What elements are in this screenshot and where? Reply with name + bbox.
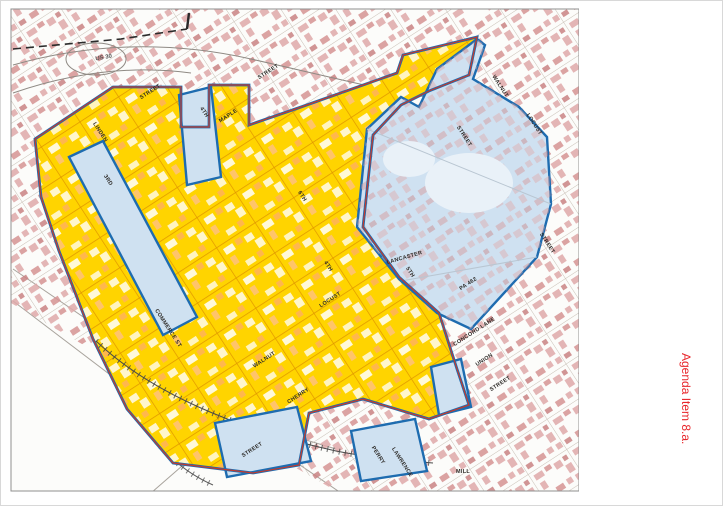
page: US 30 STREET MAPLE STREET LINDEN 3RD 4TH… xyxy=(0,0,723,506)
expansion-bottom-strip-2 xyxy=(351,419,427,481)
street-label-mill: MILL xyxy=(456,469,470,475)
agenda-item-note: Agenda Item 8.a. xyxy=(679,353,693,444)
side-panel: Columbia Borough Historic District LEGEN… xyxy=(579,1,723,506)
